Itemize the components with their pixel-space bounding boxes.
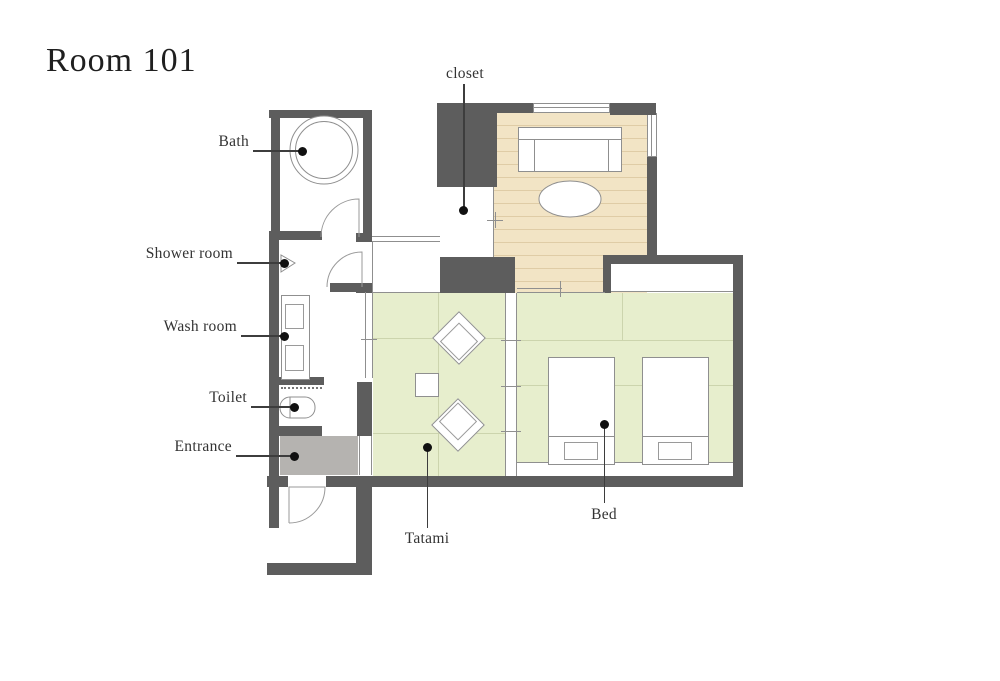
label-tatami: Tatami bbox=[387, 530, 467, 548]
leader-closet bbox=[463, 84, 465, 210]
dot-wash-room bbox=[280, 332, 289, 341]
bath-door-arc bbox=[321, 199, 359, 237]
pillow-icon bbox=[564, 442, 598, 460]
dot-bath bbox=[298, 147, 307, 156]
pillow-icon bbox=[658, 442, 692, 460]
sofa-armrest-line bbox=[608, 139, 609, 171]
sofa-armrest-line bbox=[534, 139, 535, 171]
dot-shower-room bbox=[280, 259, 289, 268]
plan-symbols-layer bbox=[0, 0, 1000, 681]
side-table-icon bbox=[415, 373, 439, 397]
leader-tatami bbox=[427, 448, 429, 528]
bed-icon bbox=[642, 357, 709, 465]
leader-bed bbox=[604, 425, 606, 503]
label-bed: Bed bbox=[574, 506, 634, 524]
sofa-icon bbox=[518, 127, 622, 172]
dot-tatami bbox=[423, 443, 432, 452]
leader-wash-room bbox=[241, 335, 284, 337]
dot-entrance bbox=[290, 452, 299, 461]
label-shower-room: Shower room bbox=[133, 245, 233, 263]
leader-toilet bbox=[251, 406, 294, 408]
dot-bed bbox=[600, 420, 609, 429]
label-closet: closet bbox=[443, 65, 487, 83]
leader-entrance bbox=[236, 455, 294, 457]
entrance-door-arc bbox=[289, 487, 325, 523]
dot-toilet bbox=[290, 403, 299, 412]
label-toilet: Toilet bbox=[147, 389, 247, 407]
dot-closet bbox=[459, 206, 468, 215]
sink-icon bbox=[285, 304, 304, 329]
label-wash-room: Wash room bbox=[137, 318, 237, 336]
sink-icon bbox=[285, 345, 304, 371]
oval-table-icon bbox=[539, 181, 601, 217]
bed-foot-line bbox=[643, 436, 708, 437]
shower-door-arc bbox=[327, 252, 362, 287]
floor-plan: Room 101 bbox=[0, 0, 1000, 681]
leader-shower-room bbox=[237, 262, 284, 264]
label-entrance: Entrance bbox=[132, 438, 232, 456]
leader-bath bbox=[253, 150, 302, 152]
label-bath: Bath bbox=[189, 133, 249, 151]
